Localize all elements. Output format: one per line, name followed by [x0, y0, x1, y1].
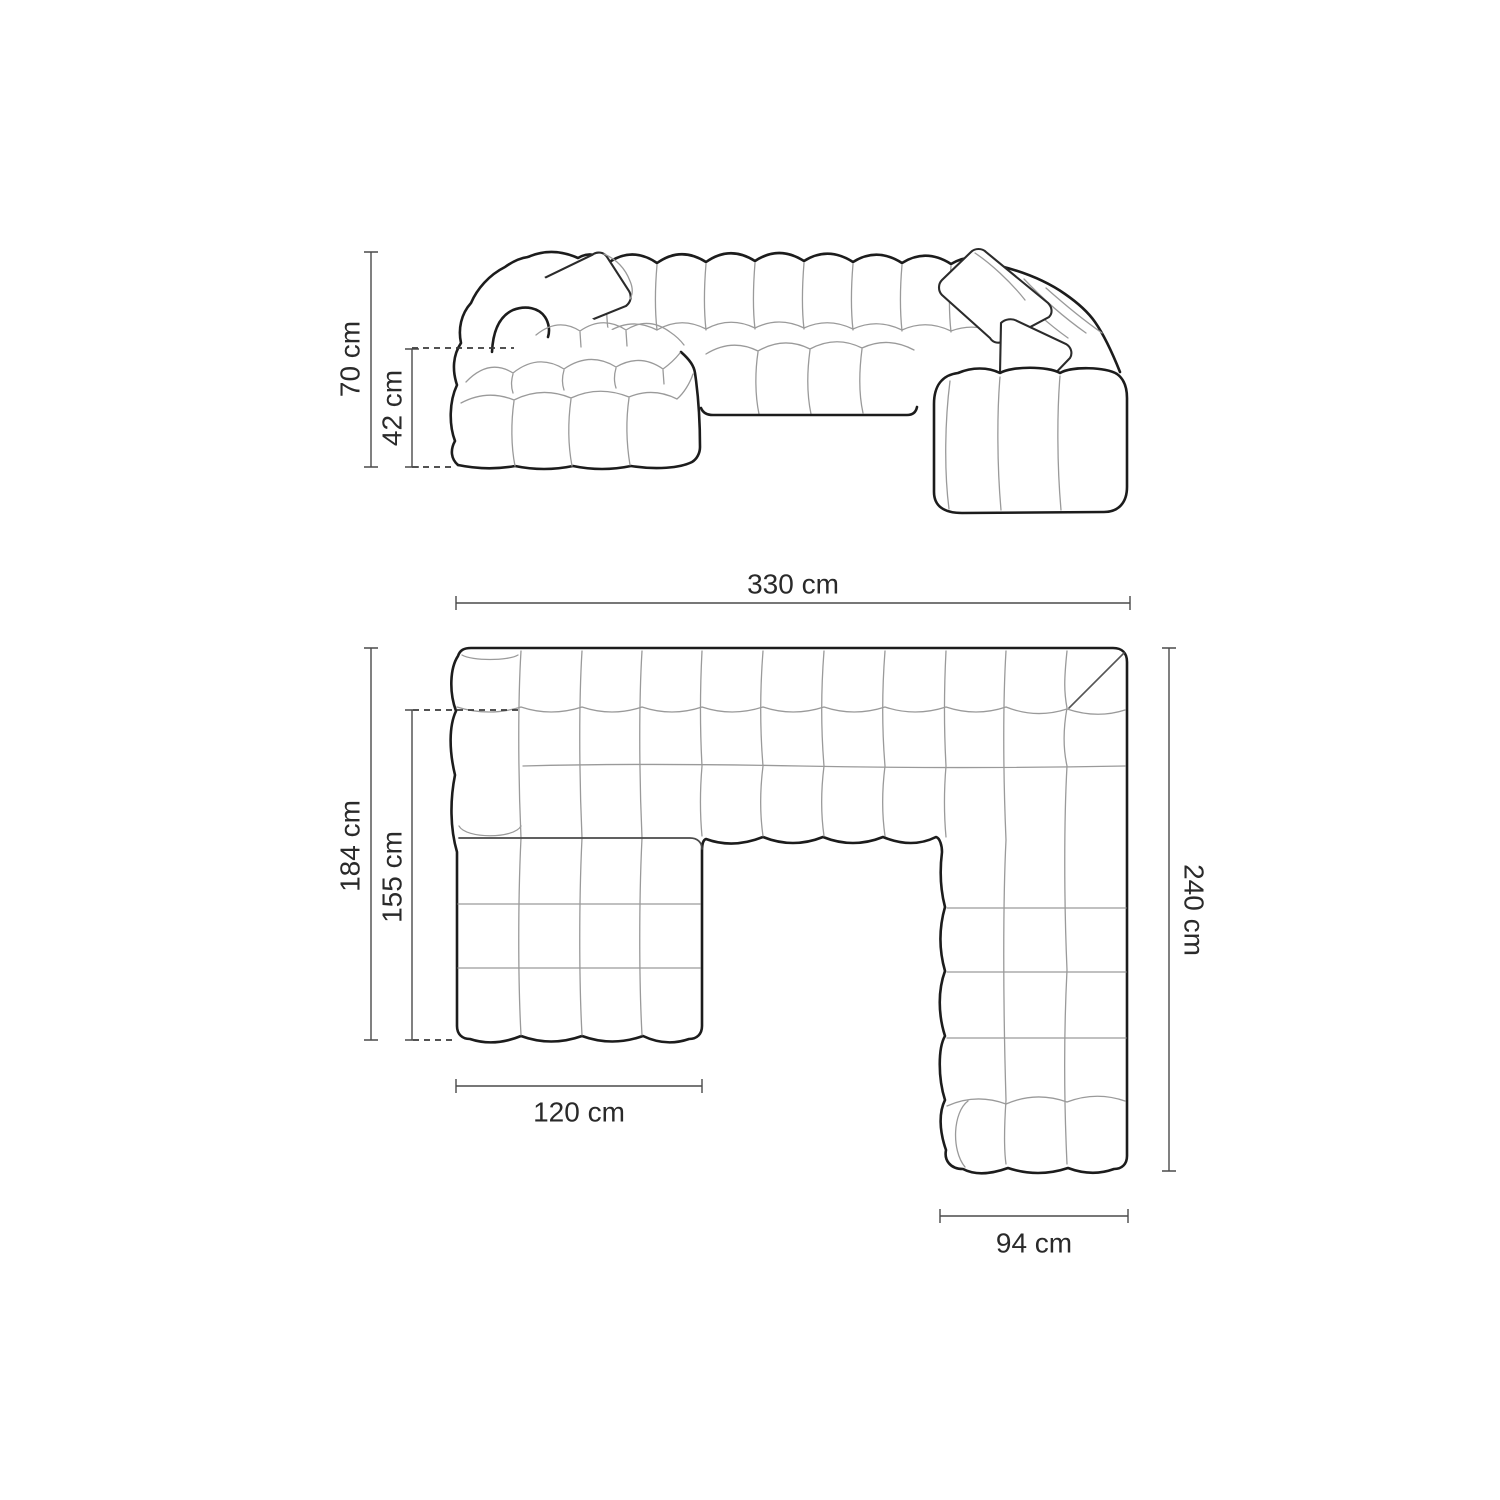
dim-label-seat-height: 42 cm [377, 370, 408, 446]
dimension-seat-height: 42 cm [377, 349, 420, 467]
right-arm-block [934, 368, 1127, 513]
sofa-dimension-diagram: 70 cm 42 cm [0, 0, 1500, 1500]
dim-label-overall-width: 330 cm [747, 569, 839, 600]
dim-label-right-depth: 240 cm [1179, 864, 1210, 956]
diagram-canvas: 70 cm 42 cm [0, 0, 1500, 1500]
plan-outline [451, 648, 1127, 1173]
dimension-overall-height: 70 cm [335, 252, 379, 467]
dimension-right-arm-width: 94 cm [940, 1209, 1128, 1259]
dimension-chaise-length: 155 cm [377, 710, 420, 1040]
front-elevation-view [451, 249, 1127, 513]
dim-label-right-arm-width: 94 cm [996, 1228, 1072, 1259]
dim-label-chaise-length: 155 cm [377, 831, 408, 923]
top-plan-view [451, 648, 1127, 1173]
dim-label-overall-height: 70 cm [335, 321, 366, 397]
dimension-overall-width: 330 cm [456, 569, 1130, 611]
dim-label-chaise-width: 120 cm [533, 1097, 625, 1128]
dimension-left-depth: 184 cm [335, 648, 379, 1040]
dimension-chaise-width: 120 cm [456, 1079, 702, 1128]
dimension-right-depth: 240 cm [1162, 648, 1210, 1171]
dim-label-left-depth: 184 cm [335, 800, 366, 892]
